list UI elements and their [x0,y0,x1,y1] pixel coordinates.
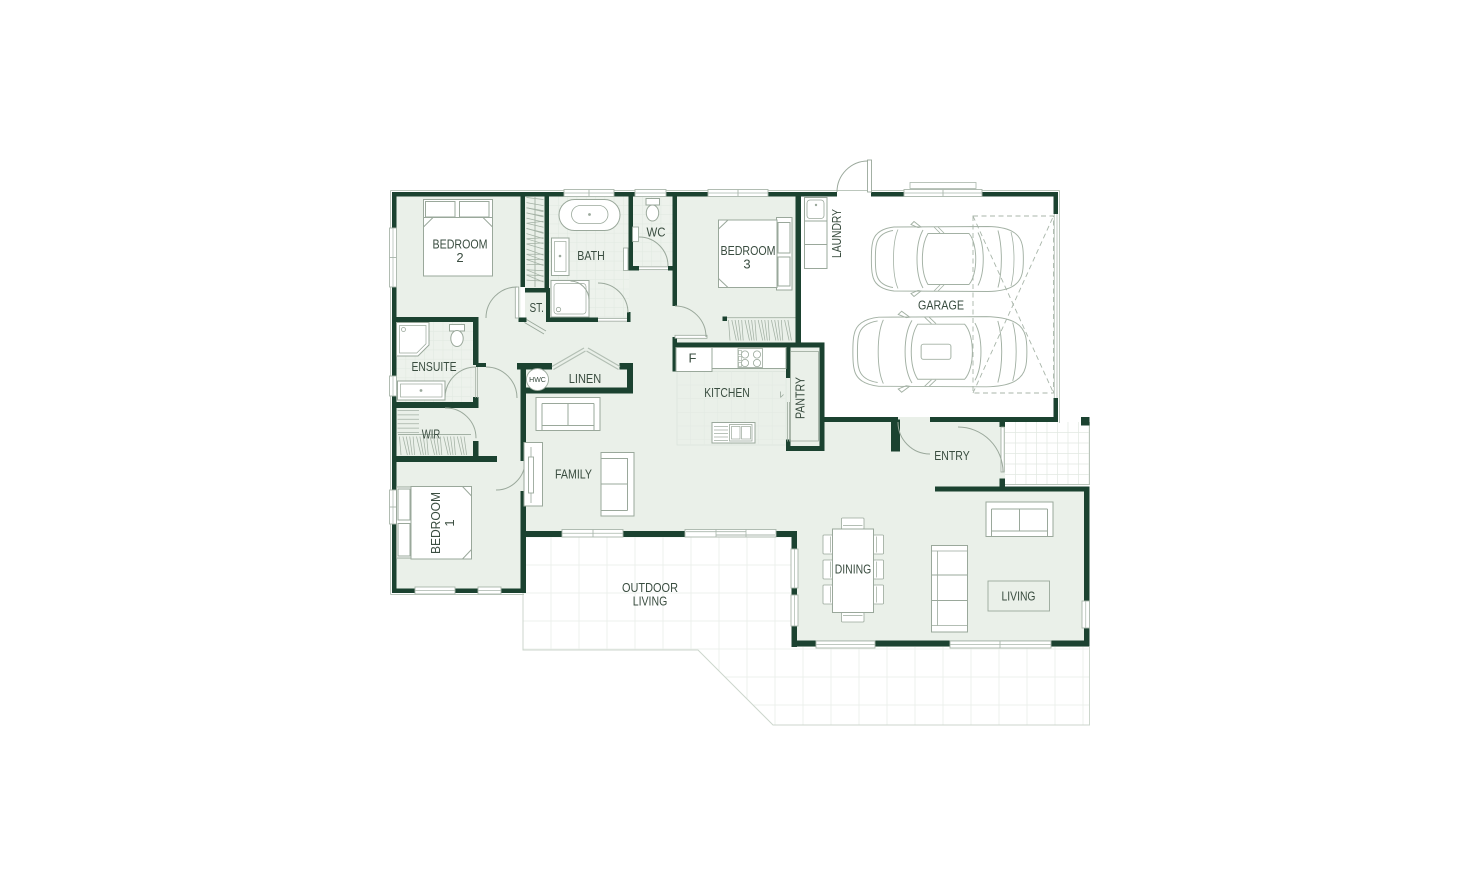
svg-text:LIVING: LIVING [633,594,668,609]
svg-text:ENTRY: ENTRY [934,448,970,463]
svg-text:3: 3 [743,257,750,272]
svg-text:FAMILY: FAMILY [555,467,592,482]
svg-text:KITCHEN: KITCHEN [704,385,750,400]
svg-text:2: 2 [456,250,463,265]
svg-text:PANTRY: PANTRY [793,377,808,419]
svg-text:DINING: DINING [835,562,872,577]
svg-text:BATH: BATH [577,248,605,263]
svg-text:LINEN: LINEN [569,371,602,386]
svg-text:ST.: ST. [529,300,544,315]
svg-text:BEDROOM: BEDROOM [428,492,443,554]
svg-text:ENSUITE: ENSUITE [412,359,457,374]
svg-text:F: F [689,351,697,366]
svg-text:WC: WC [647,225,666,240]
svg-text:1: 1 [442,519,457,526]
svg-text:GARAGE: GARAGE [918,298,964,313]
svg-text:LAUNDRY: LAUNDRY [829,209,844,258]
svg-text:WIR: WIR [422,427,441,442]
svg-text:LIVING: LIVING [1002,589,1036,604]
svg-text:HWC: HWC [529,377,546,384]
